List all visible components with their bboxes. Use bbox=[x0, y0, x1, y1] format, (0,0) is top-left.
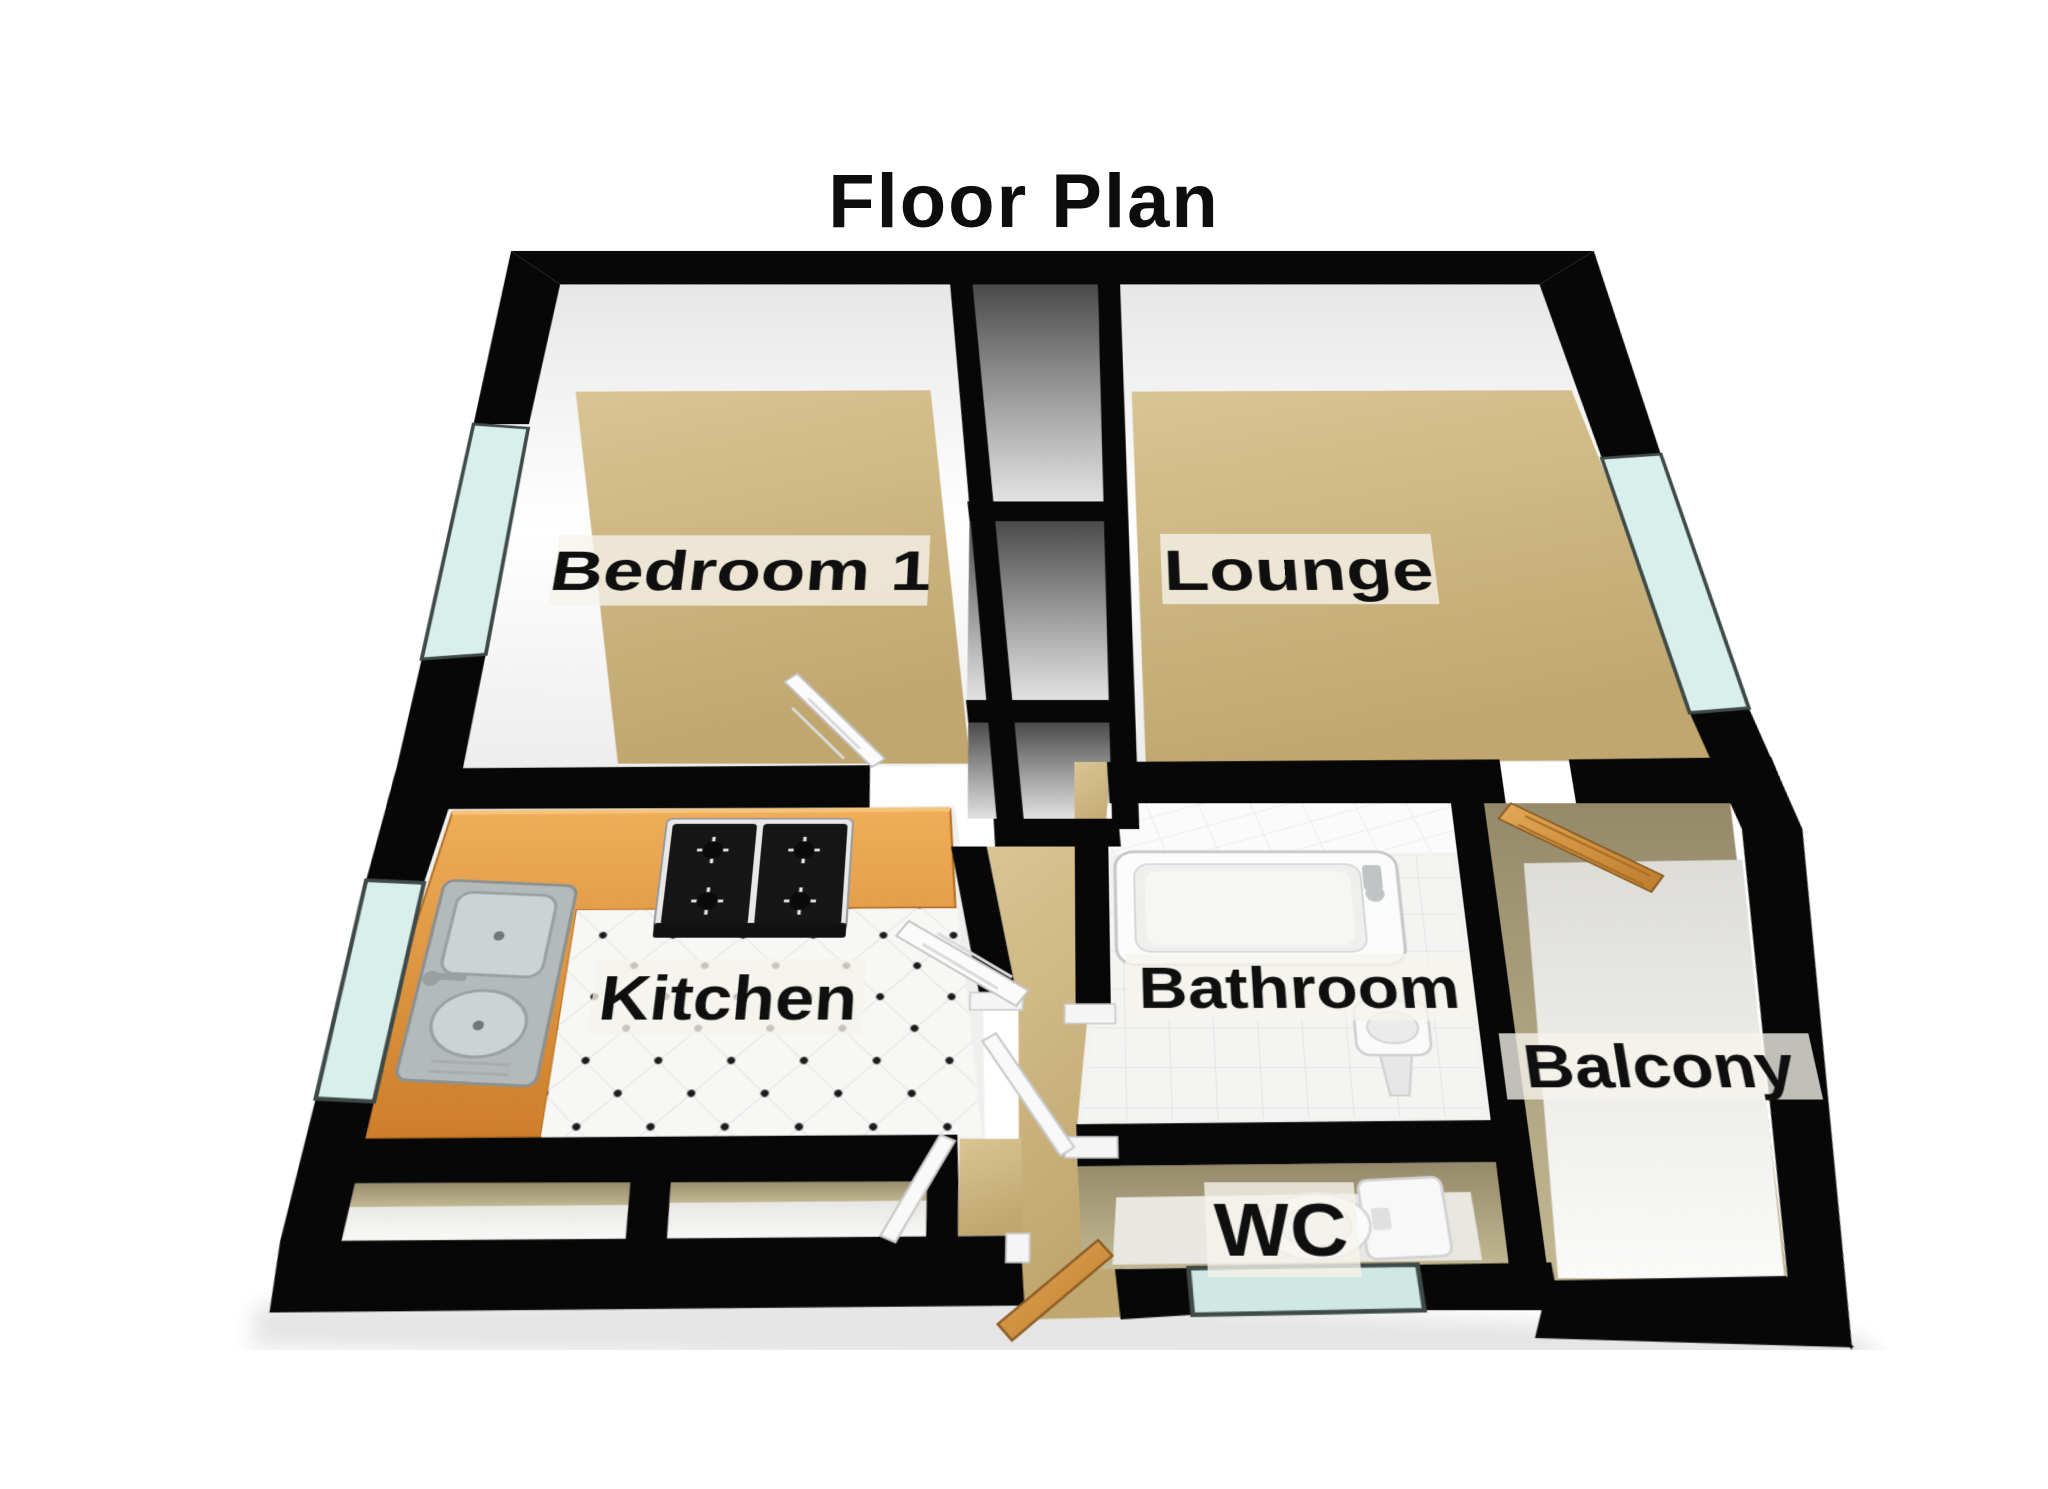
floor-plan-page: Floor Plan bbox=[0, 0, 2048, 1489]
wall-storage-divider bbox=[623, 1181, 673, 1241]
wall-closet-divider-1 bbox=[967, 501, 1106, 521]
hallway-floor-lower-left bbox=[957, 1139, 1024, 1236]
floor-plan-svg: Bedroom 1 Lounge Kitchen Bathroom Balcon… bbox=[111, 245, 2005, 1350]
storage-room-2-backwall bbox=[669, 1179, 929, 1203]
wall-bedroom-kitchen bbox=[386, 765, 872, 809]
wall-wc-bottom-left bbox=[1115, 1268, 1193, 1319]
wall-bottom-left bbox=[265, 1236, 1025, 1313]
wall-top bbox=[504, 251, 1601, 284]
wc-label: WC bbox=[1213, 1189, 1351, 1273]
gas-hob bbox=[653, 819, 854, 938]
wall-storage-right bbox=[925, 1181, 960, 1241]
page-title: Floor Plan bbox=[0, 158, 2048, 245]
bedroom-label: Bedroom 1 bbox=[546, 540, 933, 602]
balcony-label: Balcony bbox=[1519, 1033, 1802, 1102]
storage-room-1-backwall bbox=[341, 1181, 631, 1207]
kitchen-label: Kitchen bbox=[595, 965, 860, 1033]
wall-lounge-bottom-left bbox=[1107, 759, 1506, 803]
bathroom-label: Bathroom bbox=[1138, 956, 1463, 1022]
floor-plan-3d: Bedroom 1 Lounge Kitchen Bathroom Balcon… bbox=[111, 245, 2005, 1350]
wall-closet-divider-2 bbox=[965, 700, 1112, 723]
wall-wc-bottom-right bbox=[1417, 1262, 1560, 1310]
wall-closet-cap bbox=[993, 819, 1121, 847]
wall-bathroom-wc-divider bbox=[1076, 1120, 1497, 1166]
wall-bathroom-left bbox=[1075, 847, 1111, 1021]
wall-kitchen-storage bbox=[330, 1135, 960, 1184]
bathroom-wall-tiles bbox=[1108, 803, 1458, 854]
bathtub bbox=[1115, 852, 1407, 965]
lounge-label: Lounge bbox=[1162, 538, 1437, 602]
